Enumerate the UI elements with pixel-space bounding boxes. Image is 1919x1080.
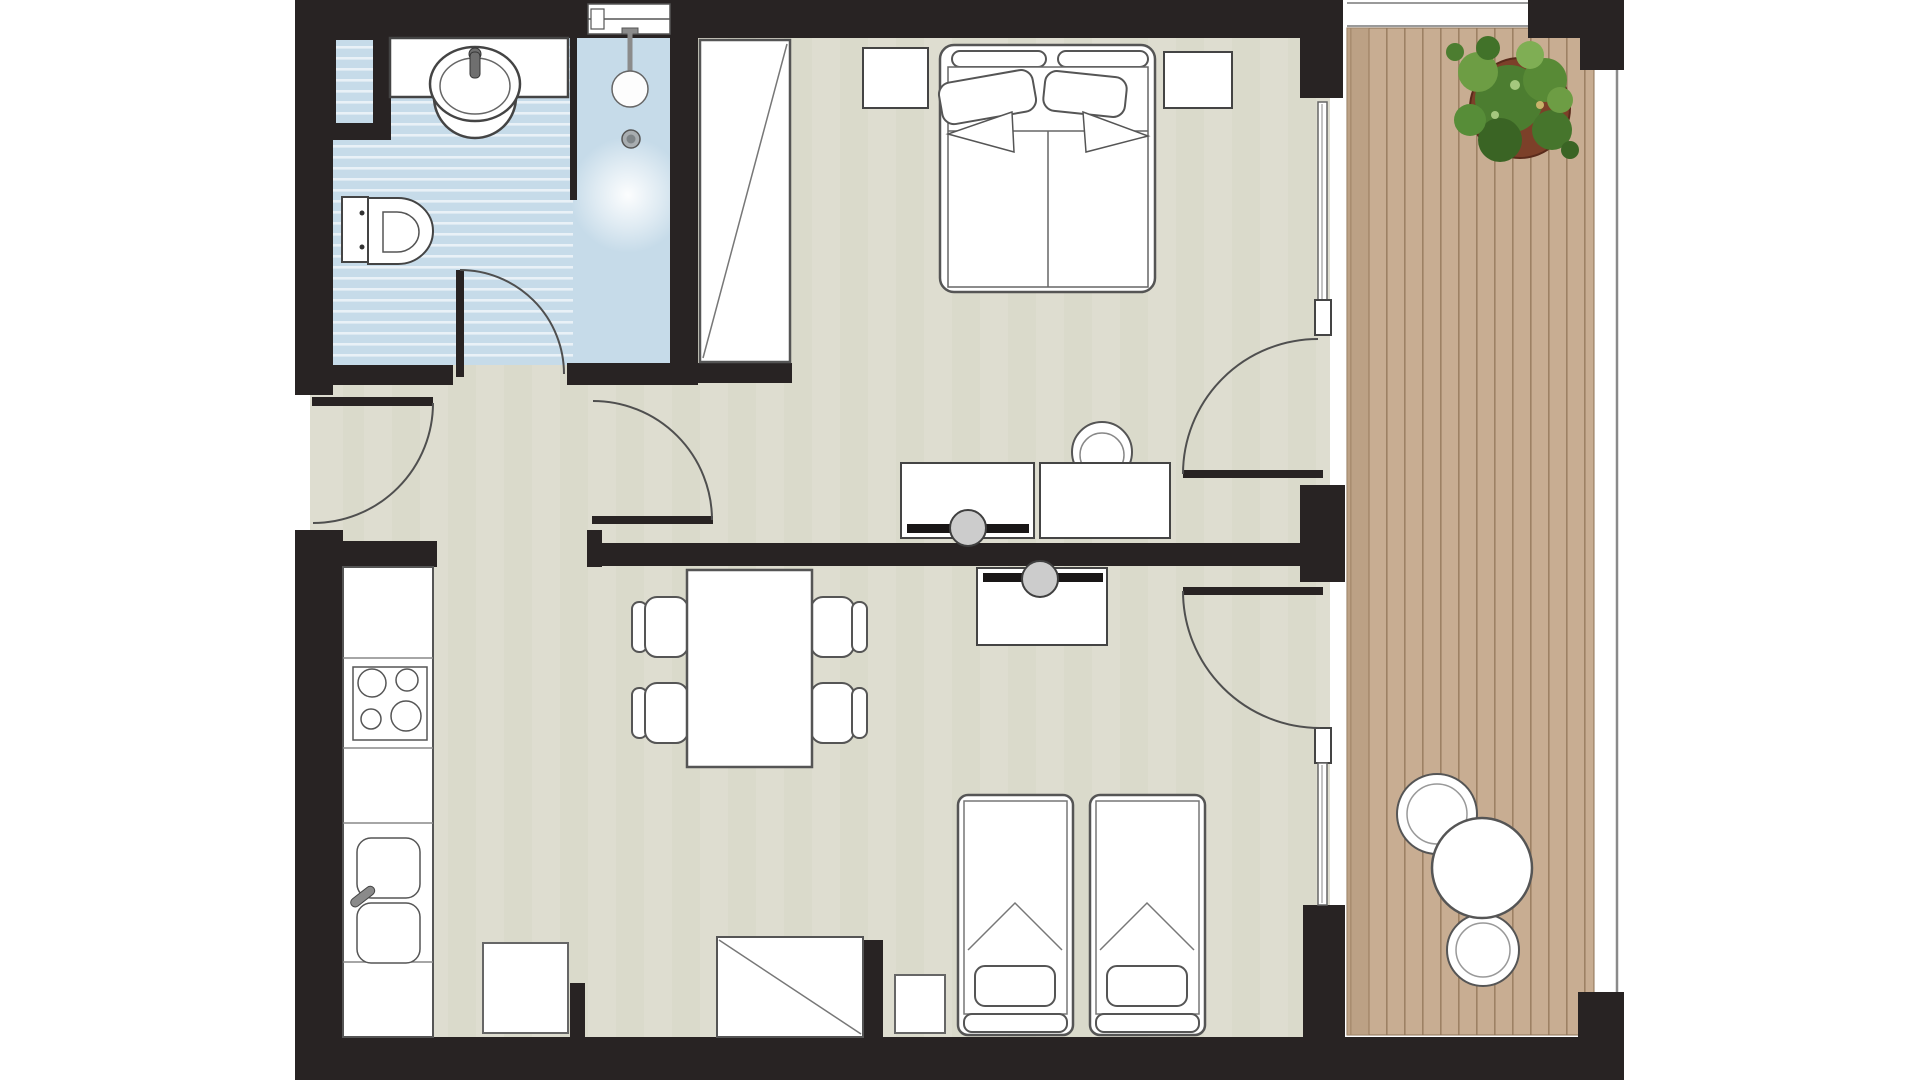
double-bed-pillow-right <box>1042 70 1128 118</box>
wall-bath-bottom-left <box>333 365 453 385</box>
living-tv-stand <box>1022 561 1058 597</box>
stove-burner-3 <box>361 709 381 729</box>
plant-highlight-2 <box>1491 111 1499 119</box>
wall-right-pier-low <box>1303 905 1345 1037</box>
balcony-table <box>1432 818 1532 918</box>
nightstand-right <box>1164 52 1232 108</box>
dressing-table <box>1040 463 1170 538</box>
nightstand-left <box>863 48 928 108</box>
toilet-bowl-inner <box>383 212 419 252</box>
shower-drain-inner <box>627 135 636 144</box>
glass-door-bedroom-cap <box>1315 300 1331 335</box>
dining-chair-rb-back <box>852 688 867 738</box>
entry-door-leaf <box>312 397 433 406</box>
plant-foliage-6 <box>1454 104 1486 136</box>
entry-floor-patch <box>310 385 343 532</box>
kitchen-sink-basin-2 <box>357 903 420 963</box>
wall-divider-band <box>600 543 1303 566</box>
stove-burner-4 <box>391 701 421 731</box>
niche-slot <box>336 40 373 123</box>
plant-foliage-7 <box>1516 41 1544 69</box>
wall-kitchen-stub <box>343 541 437 567</box>
wall-pier-small-1 <box>570 983 585 1037</box>
sink-faucet-body <box>470 52 480 78</box>
wall-bath-right <box>670 28 698 363</box>
floor-plan-canvas <box>0 0 1919 1080</box>
dining-chair-lb-seat <box>645 683 688 743</box>
plant-highlight-1 <box>1510 80 1520 90</box>
toilet-button-1 <box>360 211 365 216</box>
glass-door-living-cap <box>1315 728 1331 763</box>
plant-foliage-10 <box>1446 43 1464 61</box>
wall-bath-bottom-right <box>567 363 698 385</box>
dining-chair-rb-seat <box>811 683 854 743</box>
shower-glow <box>570 137 686 253</box>
shower-head <box>612 71 648 107</box>
stove-burner-2 <box>396 669 418 691</box>
wall-balcony-corner-b <box>1580 38 1624 70</box>
wall-top <box>295 0 1343 38</box>
wall-balcony-corner-a <box>1528 0 1624 38</box>
wall-right-pier-mid <box>1300 485 1345 582</box>
plant-foliage-8 <box>1476 36 1500 60</box>
double-bed-headboard-right <box>1058 51 1148 67</box>
balcony-deck-edge-strip <box>1347 28 1369 1035</box>
wall-left-lower <box>295 530 343 1037</box>
balcony-chair-b <box>1447 914 1519 986</box>
single-bed-1-pillow <box>975 966 1055 1006</box>
kitchen-counter <box>343 567 433 1037</box>
dining-chair-lt-seat <box>645 597 688 657</box>
dining-table <box>687 570 812 767</box>
bedroom-balcony-door-leaf <box>1183 470 1323 478</box>
cabinet-bottom-2 <box>895 975 945 1033</box>
wall-bath-divider <box>570 38 577 200</box>
plant-foliage-9 <box>1547 87 1573 113</box>
wall-bottom-right-corner <box>1578 992 1624 1080</box>
double-bed-headboard-left <box>952 51 1046 67</box>
living-door-leaf <box>592 516 713 524</box>
bathroom-door-leaf <box>456 270 464 377</box>
single-bed-1-headboard <box>964 1014 1067 1032</box>
bedroom-tv-stand <box>950 510 986 546</box>
dining-chair-rt-seat <box>811 597 854 657</box>
toilet-button-2 <box>360 245 365 250</box>
toilet-tank <box>342 197 368 262</box>
plant-highlight-3 <box>1536 101 1544 109</box>
single-bed-2-pillow <box>1107 966 1187 1006</box>
wall-wardrobe-stub <box>698 363 792 383</box>
wall-divider-end <box>587 530 602 567</box>
plant-foliage-11 <box>1561 141 1579 159</box>
living-balcony-door-leaf <box>1183 587 1323 595</box>
wall-top-right-step <box>1300 38 1343 98</box>
wall-pier-small-2 <box>863 940 883 1037</box>
window-top-cap <box>591 9 604 29</box>
cabinet-bottom-1 <box>483 943 568 1033</box>
single-bed-2-headboard <box>1096 1014 1199 1032</box>
stove-burner-1 <box>358 669 386 697</box>
wall-left-upper <box>295 0 333 395</box>
apartment-floor-plan <box>0 0 1919 1080</box>
wall-bottom <box>295 1037 1580 1080</box>
dining-chair-rt-back <box>852 602 867 652</box>
